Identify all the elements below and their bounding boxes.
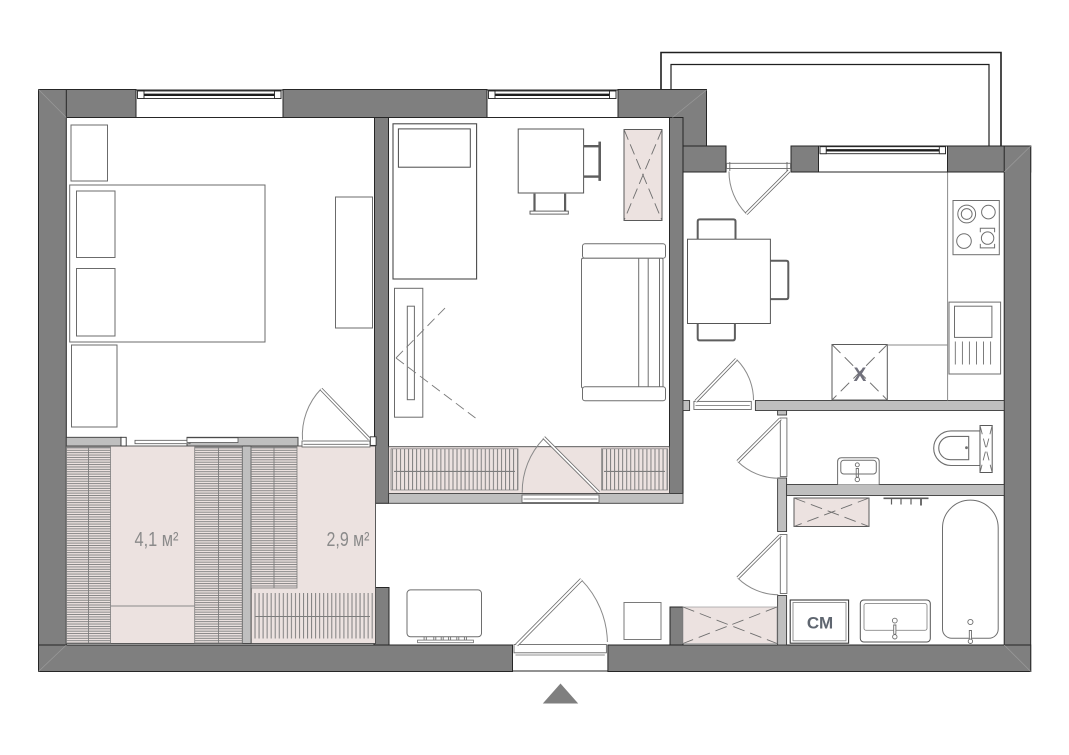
svg-text:2,9 м²: 2,9 м² [327, 529, 370, 551]
svg-text:4,1 м²: 4,1 м² [135, 529, 179, 551]
svg-text:Х: Х [854, 365, 867, 386]
svg-text:СМ: СМ [807, 614, 833, 633]
